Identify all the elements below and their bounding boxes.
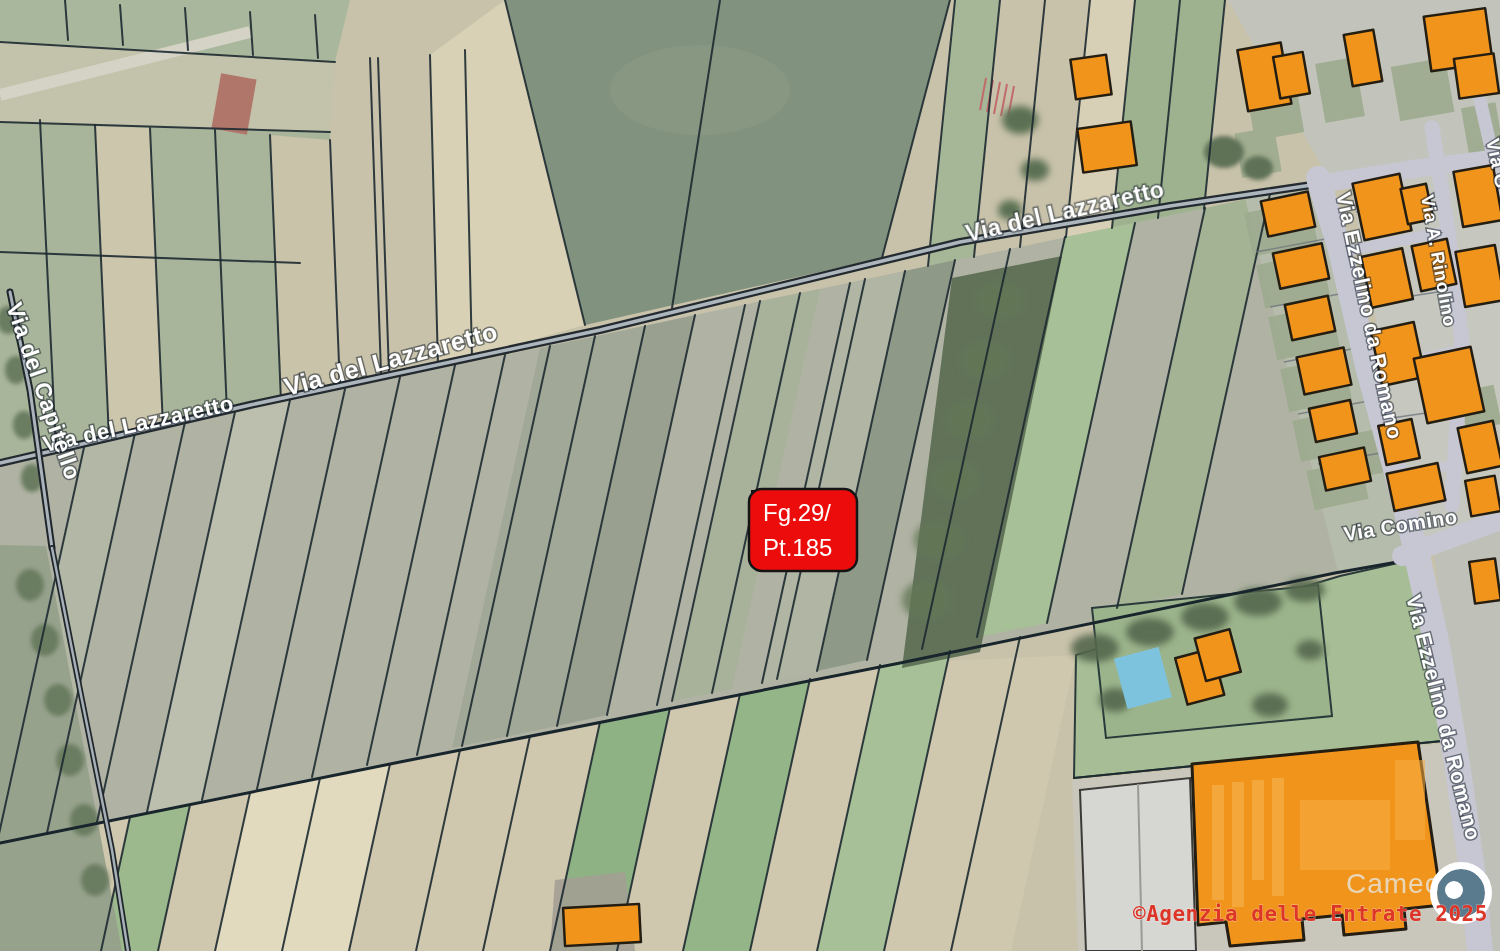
parcel-marker-line1: Fg.29/	[763, 499, 831, 526]
map-viewport[interactable]: Via del Lazzaretto Via del Lazzaretto Vi…	[0, 0, 1500, 951]
parcel-marker-line2: Pt.185	[763, 534, 832, 561]
parcel-marker[interactable]: Fg.29/ Pt.185	[749, 489, 857, 571]
business-label: Camec	[1346, 868, 1440, 899]
attribution-watermark: ©Agenzia delle Entrate 2025	[1133, 902, 1488, 926]
cadastral-map[interactable]: Via del Lazzaretto Via del Lazzaretto Vi…	[0, 0, 1500, 951]
